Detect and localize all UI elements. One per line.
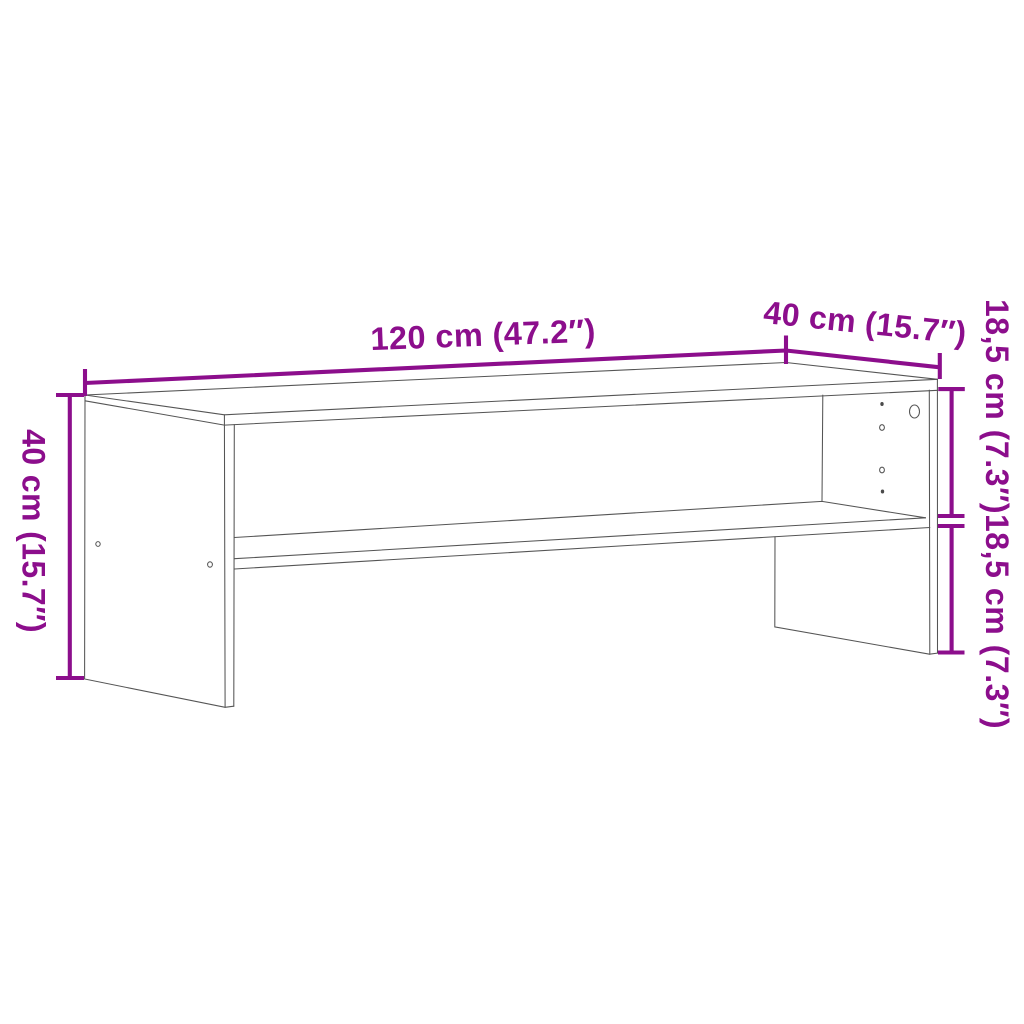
svg-text:18,5 cm (7.3″): 18,5 cm (7.3″) (979, 299, 1015, 514)
svg-text:40 cm (15.7″): 40 cm (15.7″) (16, 429, 52, 633)
svg-text:18,5 cm (7.3″): 18,5 cm (7.3″) (979, 514, 1015, 729)
